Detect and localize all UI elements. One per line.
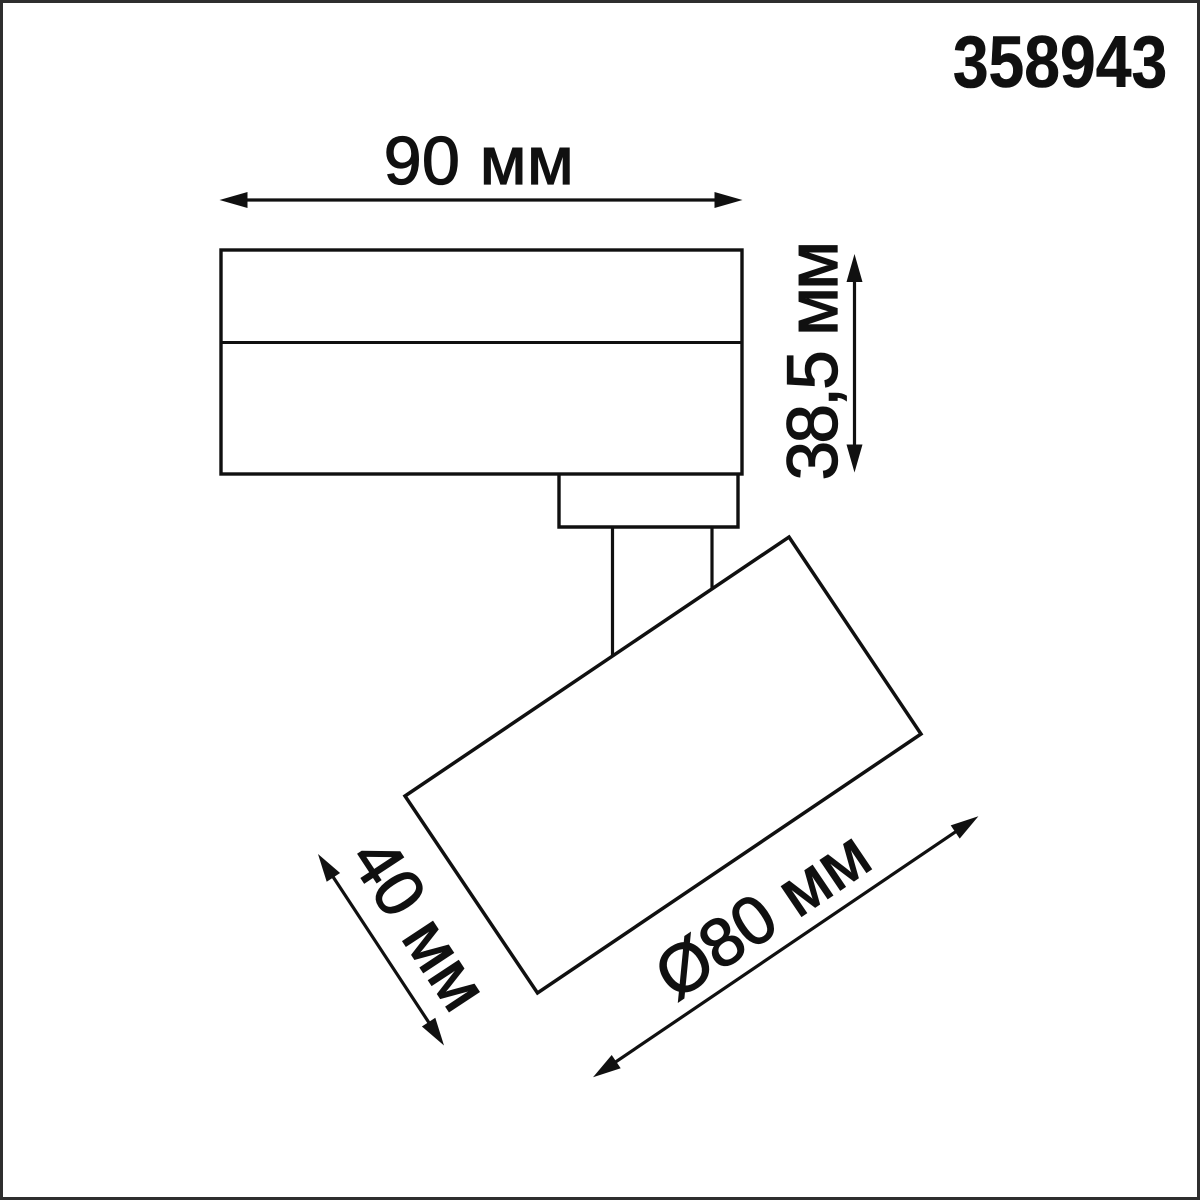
svg-text:358943: 358943: [953, 21, 1167, 103]
svg-text:90 мм: 90 мм: [384, 123, 575, 199]
svg-text:38,5 мм: 38,5 мм: [774, 244, 853, 481]
